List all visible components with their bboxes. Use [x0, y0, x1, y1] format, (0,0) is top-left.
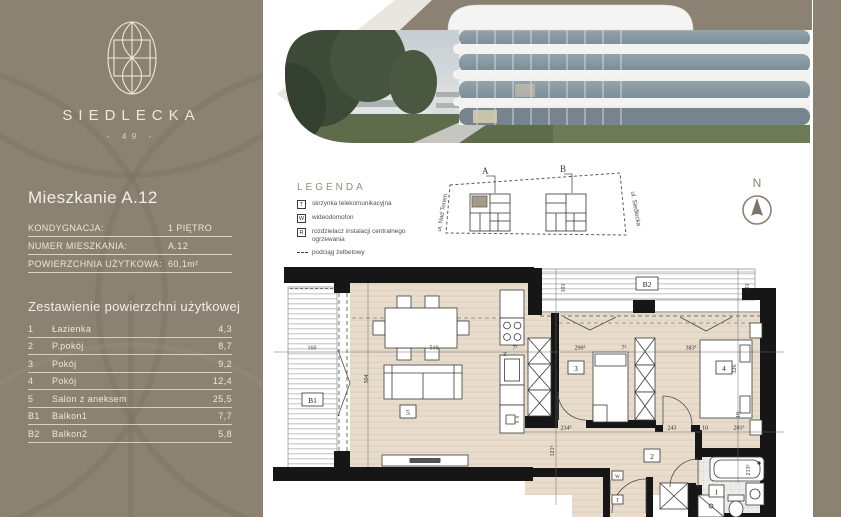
- kitchen-sink: [500, 355, 524, 385]
- room-number: B1: [28, 411, 52, 421]
- dim-bath-width: 201⁵: [733, 426, 744, 432]
- room-number: 3: [28, 359, 52, 369]
- dim-room4-height: 326: [732, 365, 738, 374]
- building-roof: [448, 5, 693, 30]
- info-value: A.12: [168, 241, 232, 251]
- building-b-label: B: [560, 164, 566, 174]
- table-row: 1 Łazienka 4,3: [28, 320, 232, 338]
- info-table: KONDYGNACJA: 1 PIĘTRO NUMER MIESZKANIA: …: [28, 219, 232, 273]
- dim-salon-width: 510: [430, 346, 439, 352]
- info-row: POWIERZCHNIA UŻYTKOWA: 60,1m²: [28, 255, 232, 273]
- table-row: B2 Balkon2 5,8: [28, 425, 232, 443]
- toilet-tank: [728, 495, 744, 501]
- room-label-2: 2: [650, 452, 654, 461]
- room-label-1: 1: [715, 488, 719, 497]
- brand-number: - 49 -: [0, 131, 263, 141]
- dim-room3-width: 290⁵: [574, 346, 585, 352]
- beam-dash-icon: [297, 252, 308, 253]
- room-area: 4,3: [190, 324, 232, 334]
- info-label: NUMER MIESZKANIA:: [28, 241, 168, 251]
- building-photo: [263, 0, 812, 160]
- compass: N: [735, 176, 779, 234]
- room-number: 5: [28, 394, 52, 404]
- info-label: KONDYGNACJA:: [28, 223, 168, 233]
- table-row: B1 Balkon1 7,7: [28, 408, 232, 426]
- room-area: 12,4: [190, 376, 232, 386]
- room-label-b1: B1: [308, 396, 317, 405]
- room-label-4: 4: [722, 364, 726, 373]
- dim-wardrobe: 7⁵: [621, 346, 626, 352]
- table-row: 4 Pokój 12,4: [28, 373, 232, 391]
- site-plan: A B ul. Nad Torem ul. Siedlecka: [438, 157, 643, 259]
- room-name: Łazienka: [52, 324, 190, 334]
- entry-shaft: [660, 483, 688, 509]
- floor-plan: W T 160 510 Z 7⁵ 290⁵ 7⁵ 383⁵ 21 326 326…: [272, 255, 812, 517]
- dim-b1-width: 160: [308, 346, 317, 352]
- kitchen-stove: [500, 318, 524, 345]
- room-number: 2: [28, 341, 52, 351]
- area-table-title: Zestawienie powierzchni użytkowej: [28, 299, 240, 314]
- dim-b2-left: 101: [561, 284, 567, 293]
- room-area: 25,5: [190, 394, 232, 404]
- room-area: 5,8: [190, 429, 232, 439]
- info-label: POWIERZCHNIA UŻYTKOWA:: [28, 259, 168, 269]
- t-symbol: T: [616, 499, 619, 504]
- dim-b2-right: 101: [745, 284, 751, 293]
- leader-a: [486, 176, 495, 193]
- nightstand: [750, 420, 762, 435]
- bed-room3: [593, 352, 628, 422]
- sofa: [384, 365, 462, 399]
- logo-icon: [106, 20, 158, 96]
- dim-hall-a: 234⁵: [560, 426, 571, 432]
- building-a-label: A: [482, 166, 489, 176]
- room-label-3: 3: [574, 364, 578, 373]
- brand-name: SIEDLECKA: [0, 107, 263, 124]
- room-area: 9,2: [190, 359, 232, 369]
- building-b: [546, 194, 586, 231]
- kitchen-shaft: [528, 338, 551, 416]
- info-row: KONDYGNACJA: 1 PIĘTRO: [28, 219, 232, 237]
- dim-hall-height: 121⁵: [550, 445, 556, 456]
- sidebar: SIEDLECKA - 49 - Mieszkanie A.12 KONDYGN…: [0, 0, 263, 517]
- street-right-label: ul. Siedlecka: [629, 191, 642, 227]
- info-value: 60,1m²: [168, 259, 232, 269]
- toilet: [729, 501, 743, 517]
- room-name: Balkon1: [52, 411, 190, 421]
- dim-nightstand: 21: [762, 346, 768, 352]
- legend-label: wideodomofon: [312, 214, 354, 222]
- telecom-box-icon: T: [297, 200, 306, 209]
- room-name: Pokój: [52, 359, 190, 369]
- dim-hall-b: 243: [668, 426, 677, 432]
- room-name: Balkon2: [52, 429, 190, 439]
- table-row: 5 Salon z aneksem 25,5: [28, 390, 232, 408]
- kitchen-z-symbol: Z: [503, 352, 507, 358]
- info-row: NUMER MIESZKANIA: A.12: [28, 237, 232, 255]
- apartment-title: Mieszkanie A.12: [28, 188, 158, 208]
- washing-machine: [746, 483, 764, 505]
- room-number: 1: [28, 324, 52, 334]
- room-name: Salon z aneksem: [52, 394, 190, 404]
- main-building: [453, 30, 810, 125]
- legend-label: rozdzielacz instalacji centralnego ogrze…: [312, 228, 432, 244]
- logo-block: SIEDLECKA - 49 -: [0, 20, 263, 141]
- room-number: B2: [28, 429, 52, 439]
- table-row: 3 Pokój 9,2: [28, 355, 232, 373]
- table-row: 2 P.pokój 8,7: [28, 338, 232, 356]
- balcony-b1: [288, 287, 337, 470]
- w-symbol: W: [615, 475, 620, 480]
- heating-manifold-icon: R: [297, 228, 306, 237]
- room-name: P.pokój: [52, 341, 190, 351]
- building-a: [470, 194, 510, 231]
- dim-bath-gap: 10: [736, 412, 742, 418]
- compass-icon: [738, 191, 776, 229]
- room-area: 8,7: [190, 341, 232, 351]
- balcony-door: [338, 293, 350, 463]
- dim-kitchen: 7⁵: [512, 346, 517, 352]
- room-name: Pokój: [52, 376, 190, 386]
- tv-bench: [382, 455, 468, 466]
- intercom-icon: W: [297, 214, 306, 223]
- info-value: 1 PIĘTRO: [168, 223, 232, 233]
- dim-gap: 10: [702, 426, 708, 432]
- room-number: 4: [28, 376, 52, 386]
- dim-bath-height: 213⁵: [746, 464, 752, 475]
- brochure-page: SIEDLECKA - 49 - Mieszkanie A.12 KONDYGN…: [0, 0, 841, 517]
- kitchen: [500, 290, 524, 433]
- north-label: N: [735, 176, 779, 190]
- dim-salon-height: 504: [364, 375, 370, 384]
- wardrobe: [635, 338, 655, 420]
- dim-room4-width: 383⁵: [685, 346, 696, 352]
- room-label-5: 5: [406, 408, 410, 417]
- legend-label: skrzynka telekomunikacyjna: [312, 200, 392, 208]
- room-label-b2: B2: [643, 280, 652, 289]
- dim-room3-height: 326: [552, 363, 558, 372]
- nightstand: [750, 323, 762, 338]
- room-area: 7,7: [190, 411, 232, 421]
- area-table: 1 Łazienka 4,3 2 P.pokój 8,7 3 Pokój 9,2…: [28, 320, 232, 443]
- right-accent-bar: [813, 0, 841, 517]
